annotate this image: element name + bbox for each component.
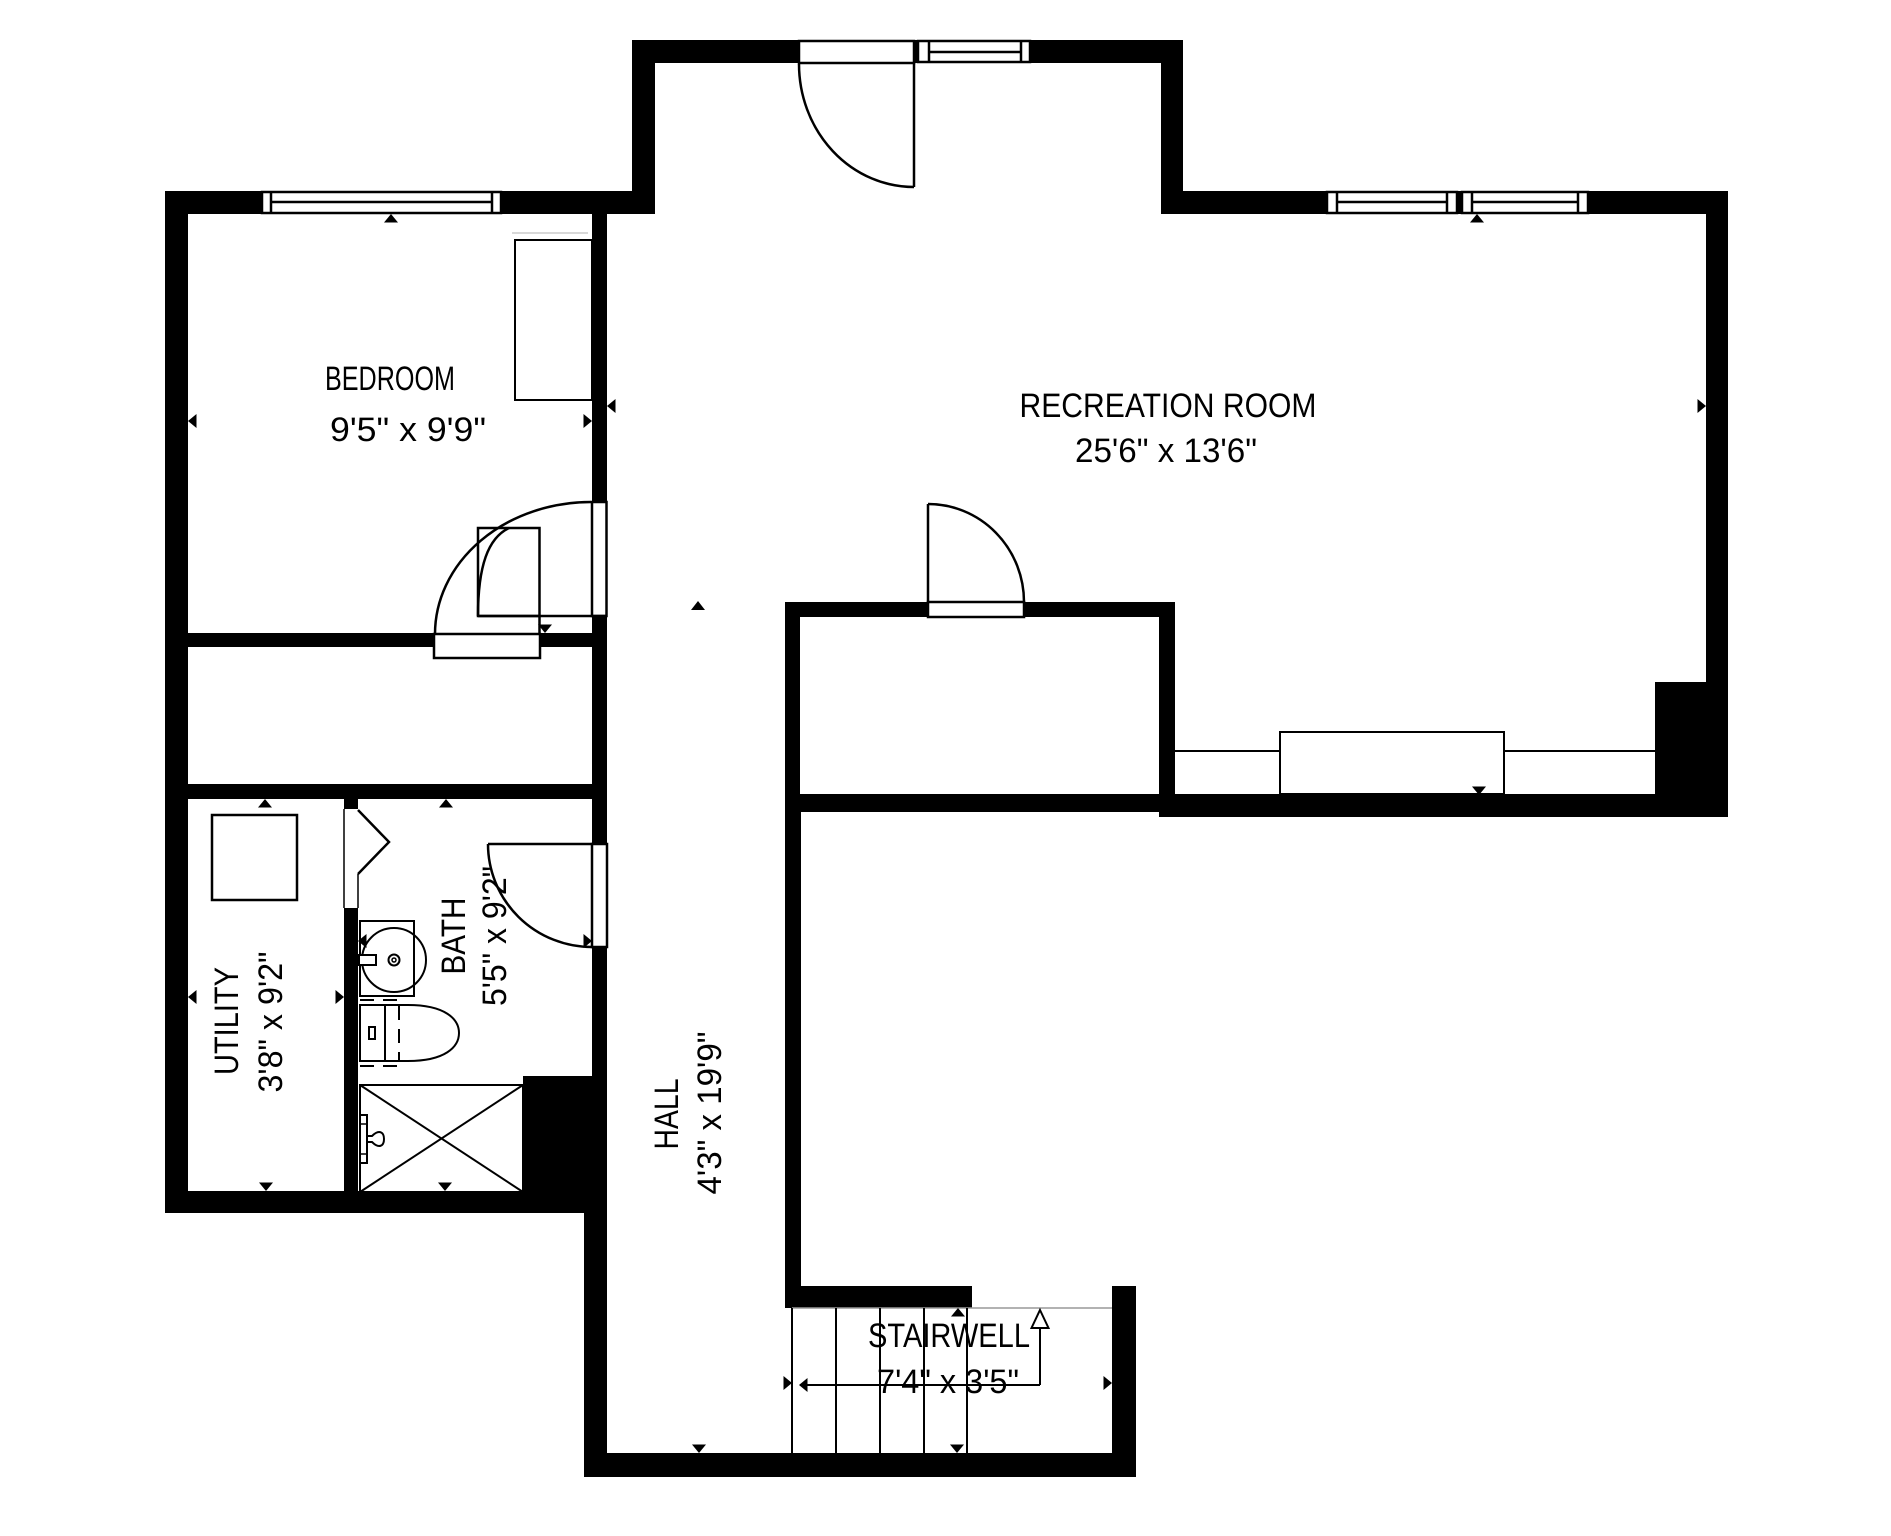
svg-text:BATH: BATH bbox=[435, 898, 473, 975]
svg-text:STAIRWELL: STAIRWELL bbox=[868, 1317, 1030, 1355]
svg-text:25'6" x 13'6": 25'6" x 13'6" bbox=[1075, 432, 1257, 470]
svg-text:BEDROOM: BEDROOM bbox=[325, 360, 455, 398]
svg-text:RECREATION ROOM: RECREATION ROOM bbox=[1020, 387, 1317, 425]
svg-text:3'8" x 9'2": 3'8" x 9'2" bbox=[252, 952, 290, 1093]
svg-text:HALL: HALL bbox=[648, 1079, 686, 1150]
svg-text:4'3" x 19'9": 4'3" x 19'9" bbox=[691, 1032, 729, 1195]
svg-text:9'5" x 9'9": 9'5" x 9'9" bbox=[330, 411, 486, 449]
svg-text:5'5" x 9'2": 5'5" x 9'2" bbox=[476, 866, 514, 1006]
svg-text:7'4" x 3'5": 7'4" x 3'5" bbox=[877, 1363, 1019, 1401]
svg-text:UTILITY: UTILITY bbox=[208, 967, 246, 1075]
